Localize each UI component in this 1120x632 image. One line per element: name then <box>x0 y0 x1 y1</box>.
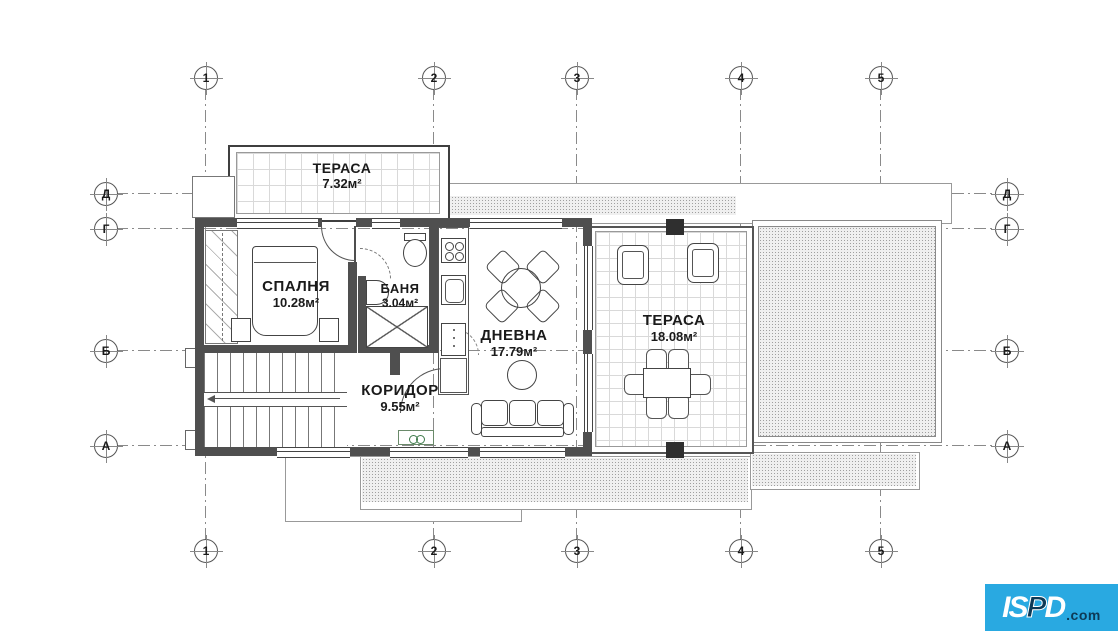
terrace-armchair-left <box>617 245 649 285</box>
terrace-table <box>643 368 691 398</box>
dining-table <box>501 268 541 308</box>
grid-bubble-right-a: А <box>995 434 1019 458</box>
bath-label: БАНЯ 3.04м² <box>356 281 444 310</box>
window-living-north <box>470 218 562 229</box>
burner <box>445 242 454 251</box>
grid-bubble-bottom-1: 1 <box>194 539 218 563</box>
living-label: ДНЕВНА 17.79м² <box>454 327 574 359</box>
corridor-label: КОРИДОР 9.55м² <box>330 382 470 414</box>
column-bottom <box>666 442 684 458</box>
grid-bubble-left-a: А <box>94 434 118 458</box>
sofa-cushion <box>509 400 536 426</box>
post-east-bottom <box>583 432 592 456</box>
window-bedroom-north <box>237 218 318 229</box>
wall-stub-corridor <box>390 353 400 375</box>
grid-bubble-right-d: Д <box>995 182 1019 206</box>
roof-square-fill <box>758 226 936 437</box>
grid-bubble-bottom-4: 4 <box>729 539 753 563</box>
cabinet-rings <box>416 435 425 444</box>
stair-direction-arrow <box>207 395 215 403</box>
terrace-chair <box>668 397 689 419</box>
terrace-chair <box>689 374 711 395</box>
grid-bubble-right-b: Б <box>995 339 1019 363</box>
terrace-right-label: ТЕРАСА 18.08м² <box>615 312 733 344</box>
burner <box>455 252 464 261</box>
nightstand-left <box>231 318 251 342</box>
sofa-cushion <box>481 400 508 426</box>
grid-bubble-top-1: 1 <box>194 66 218 90</box>
grid-bubble-left-g: Г <box>94 217 118 241</box>
sliding-glass-door-lower <box>584 354 593 432</box>
grid-bubble-left-b: Б <box>94 339 118 363</box>
door-arc-bedroom <box>321 226 355 261</box>
shower <box>366 306 428 348</box>
grid-bubble-top-3: 3 <box>565 66 589 90</box>
kitchen-sink <box>441 275 466 305</box>
terrace-chair <box>646 397 667 419</box>
grid-bubble-left-d: Д <box>94 182 118 206</box>
kitchen-sink-basin <box>445 279 464 303</box>
sliding-glass-door-upper <box>584 246 593 330</box>
lower-roof-fill-mid <box>362 458 748 502</box>
bedroom-label: СПАЛНЯ 10.28м² <box>236 278 356 310</box>
brand-logo: ISPD .com <box>985 584 1118 631</box>
roof-band-fill <box>448 196 736 215</box>
burner <box>445 252 454 261</box>
toilet-bowl <box>403 239 427 267</box>
window-stair-south <box>277 447 350 458</box>
grid-bubble-bottom-3: 3 <box>565 539 589 563</box>
terrace-top-label: ТЕРАСА 7.32м² <box>262 160 422 191</box>
logo-text: ISPD <box>1002 593 1064 623</box>
nightstand-right <box>319 318 339 342</box>
logo-letter-d: D <box>1045 591 1065 624</box>
grid-bubble-top-4: 4 <box>729 66 753 90</box>
wall-west <box>195 218 204 456</box>
stair-direction-line <box>214 398 340 399</box>
terrace-armchair-right <box>687 243 719 283</box>
window-corridor-south <box>390 447 468 458</box>
stair-landing <box>204 392 347 407</box>
stove <box>441 238 466 263</box>
column-top <box>666 219 684 235</box>
coffee-table <box>507 360 537 390</box>
post-east-top <box>583 222 592 246</box>
bed-pillow-line <box>254 262 316 263</box>
wall-south <box>350 447 390 456</box>
floor-plan: 1 2 3 4 5 1 2 3 4 5 Д Г Б А Д Г Б А ТЕРА… <box>0 0 1120 632</box>
sofa-armrest-right <box>563 403 574 435</box>
wall-south <box>195 447 277 456</box>
door-arc-bath <box>360 248 391 279</box>
wall-bedroom-south <box>195 345 357 353</box>
grid-bubble-bottom-2: 2 <box>422 539 446 563</box>
grid-bubble-bottom-5: 5 <box>869 539 893 563</box>
grid-bubble-top-5: 5 <box>869 66 893 90</box>
lower-roof-fill-right <box>752 454 916 486</box>
glazing-south <box>480 447 565 458</box>
post-east-mid <box>583 330 592 354</box>
grid-bubble-right-g: Г <box>995 217 1019 241</box>
wall-south <box>468 447 480 456</box>
logo-letters-is: IS <box>1002 591 1026 624</box>
entry-cabinet <box>398 430 434 445</box>
chimney <box>192 176 235 218</box>
wall-north <box>356 218 372 227</box>
logo-letter-p: P <box>1026 591 1044 624</box>
burner <box>455 242 464 251</box>
sofa-cushion <box>537 400 564 426</box>
logo-suffix: .com <box>1066 607 1101 631</box>
window-bath-north <box>372 218 400 229</box>
grid-bubble-top-2: 2 <box>422 66 446 90</box>
sofa-front <box>481 427 564 437</box>
